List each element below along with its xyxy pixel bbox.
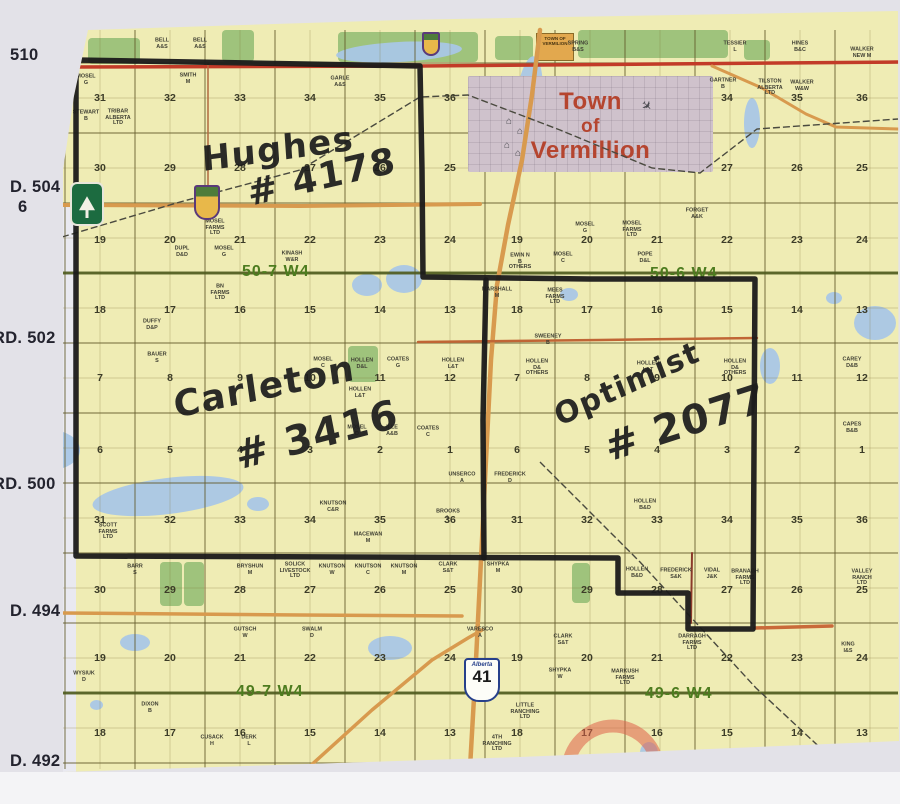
road-label: D. 494: [10, 602, 60, 621]
road-label: D. 492: [10, 752, 60, 771]
map-photo: Town of Vermillion TOWN OF VERMILION 50-…: [0, 0, 900, 804]
road-label: RD. 500: [0, 475, 56, 494]
road-label: 510: [10, 46, 38, 65]
road-margin-labels: 510D. 5046RD. 502RD. 500D. 494D. 492: [0, 0, 900, 804]
road-label: 6: [18, 198, 27, 217]
photo-bottom-margin: [0, 772, 900, 804]
road-label: D. 504: [10, 178, 60, 197]
road-label: RD. 502: [0, 329, 56, 348]
